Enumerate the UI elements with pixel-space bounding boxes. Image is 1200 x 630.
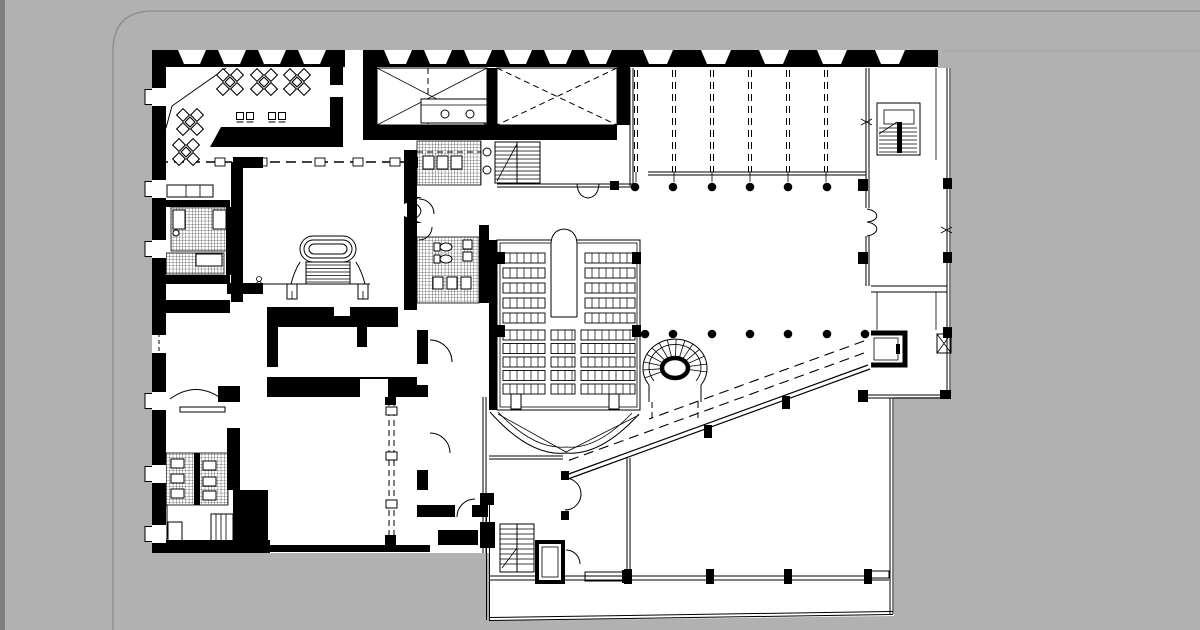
left-edge-strip <box>0 0 5 630</box>
elevator-entrance <box>537 542 563 582</box>
cafe-counter <box>210 127 343 147</box>
blog-page-screenshot <box>0 0 1200 630</box>
top-facade-band <box>152 50 938 67</box>
stair-southwest <box>211 514 233 544</box>
floor-plan-drawing <box>0 0 1200 630</box>
kitchen-counter <box>421 99 487 123</box>
